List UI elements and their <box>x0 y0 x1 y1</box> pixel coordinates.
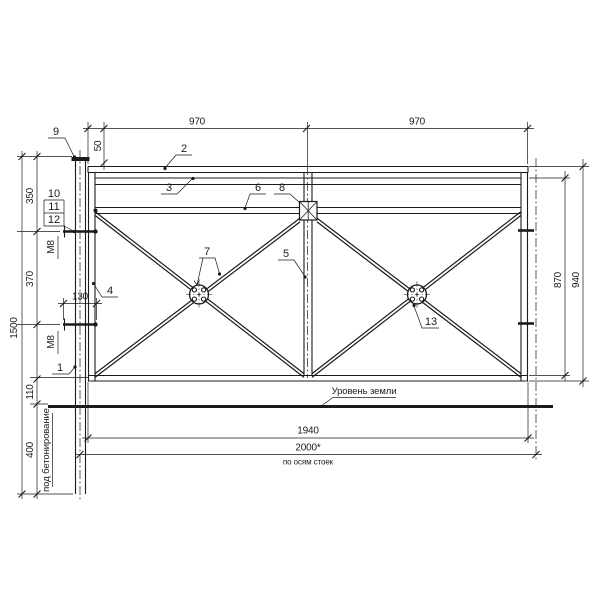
svg-text:2: 2 <box>181 143 187 155</box>
dim-span-right: 970 <box>409 117 426 128</box>
svg-text:6: 6 <box>255 182 261 194</box>
note-bolt-m8-lower: М8 <box>46 335 57 349</box>
callout-8: 8 <box>274 182 300 203</box>
diagonal-braces <box>95 212 521 378</box>
dim-panel-height: 940 <box>571 271 582 288</box>
frame-top-member <box>95 178 521 185</box>
drawing-sheet: 970 970 50 1500 350 370 110 400 130 под … <box>0 0 600 600</box>
dim-rail-offset: 50 <box>93 140 104 151</box>
dimensions-right: 870 940 <box>529 159 589 387</box>
frame-bottom-member <box>88 376 528 382</box>
dim-axis-span: 2000* <box>295 443 320 454</box>
note-ground-level: Уровень земли <box>332 386 397 397</box>
callout-4: 4 <box>92 282 118 297</box>
dim-frame-to-ground: 110 <box>25 384 36 400</box>
dim-span-left: 970 <box>189 117 206 128</box>
handrail <box>88 167 528 173</box>
svg-text:7: 7 <box>204 246 210 258</box>
svg-text:8: 8 <box>279 182 285 194</box>
dim-bolt-length: 130 <box>72 292 89 303</box>
callout-11: 11 <box>48 201 59 213</box>
dim-frame-width: 1940 <box>297 426 319 437</box>
callout-5: 5 <box>278 248 307 279</box>
dim-post-length: 1500 <box>9 317 20 339</box>
svg-text:5: 5 <box>283 248 289 260</box>
dim-embed-depth: 400 <box>25 441 36 458</box>
callout-7: 7 <box>194 246 221 285</box>
callout-3: 3 <box>161 177 195 194</box>
callout-6: 6 <box>243 182 266 210</box>
dim-bolt-to-bolt: 370 <box>25 270 36 287</box>
svg-text:1: 1 <box>57 362 63 374</box>
dimensions-top: 970 970 50 <box>83 117 534 171</box>
dim-axis-note: по осям стоек <box>283 458 334 467</box>
callout-1: 1 <box>52 362 77 374</box>
svg-text:4: 4 <box>107 285 113 297</box>
svg-text:3: 3 <box>166 182 172 194</box>
note-concreting: под бетонирование <box>41 408 52 492</box>
dim-frame-height: 870 <box>553 271 564 288</box>
svg-text:9: 9 <box>53 126 59 138</box>
note-bolt-m8-upper: М8 <box>46 240 57 254</box>
center-post <box>304 122 312 378</box>
callout-10: 10 <box>48 188 60 200</box>
callout-10-11-12: 10 11 12 <box>44 188 76 233</box>
svg-text:13: 13 <box>425 316 437 328</box>
dim-top-to-bolt: 350 <box>25 187 36 204</box>
callout-12: 12 <box>48 214 60 226</box>
ground-level-label: Уровень земли <box>321 386 396 406</box>
fence-assembly-drawing: 970 970 50 1500 350 370 110 400 130 под … <box>0 0 600 600</box>
callout-9: 9 <box>48 126 76 159</box>
gusset-plate <box>300 202 318 221</box>
